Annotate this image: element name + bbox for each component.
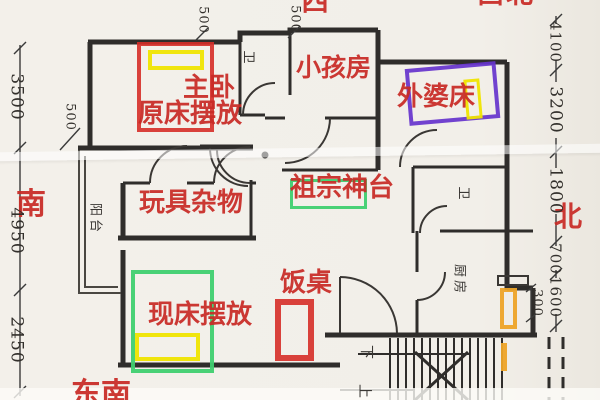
balcony-label: 阳台: [90, 203, 103, 235]
dim-left-3500: 3500: [8, 73, 25, 120]
bathroom-top-label: 卫: [243, 50, 256, 63]
orange-bar: [501, 343, 507, 371]
dim-right-1600: 1600: [548, 276, 563, 318]
compass-west: 西: [301, 0, 329, 15]
compass-northwest: 西北: [477, 0, 535, 8]
bathroom-mid-label: 卫: [458, 186, 471, 199]
dim-wall-500: 500: [64, 103, 77, 131]
kitchen-label: 厨房: [454, 264, 467, 296]
original-bed-yellow-rect: [148, 50, 204, 70]
current-bed-label: 现床摆放: [148, 301, 252, 327]
toys-storage-label: 玩具杂物: [139, 189, 243, 215]
shelf: [498, 276, 528, 285]
floorplan-photo: 主卧 原床摆放 小孩房 外婆床 玩具杂物 祖宗神台 饭桌 现床摆放 西 西北 南…: [0, 0, 600, 400]
dining-table-label: 饭桌: [280, 269, 332, 295]
dim-stair-300: 300: [531, 289, 544, 317]
master-room-label: 主卧: [183, 74, 235, 100]
dim-right-700: 700: [548, 243, 563, 275]
stairs-up-label: 上: [358, 384, 372, 398]
dim-right-1800: 1800: [547, 167, 564, 214]
compass-southeast: 东南: [71, 380, 131, 400]
dim-left-2450: 2450: [8, 316, 25, 363]
ancestral-altar-label: 祖宗神台: [290, 174, 394, 200]
dim-right-3200: 3200: [547, 86, 564, 133]
stairs-down-label: 下: [360, 345, 374, 359]
dim-right-4100: 4100: [548, 21, 563, 63]
original-bed-label: 原床摆放: [138, 100, 242, 126]
grandma-bed-label: 外婆床: [397, 83, 475, 109]
current-bed-yellow-rect: [135, 333, 200, 361]
dim-left-4950: 4950: [8, 207, 25, 254]
kids-room-label: 小孩房: [296, 56, 371, 81]
kitchen-orange-rect: [500, 288, 517, 329]
dim-top-500-a: 500: [197, 6, 210, 34]
dining-table-red-box: [275, 299, 314, 361]
dim-top-500-b: 500: [289, 5, 302, 33]
